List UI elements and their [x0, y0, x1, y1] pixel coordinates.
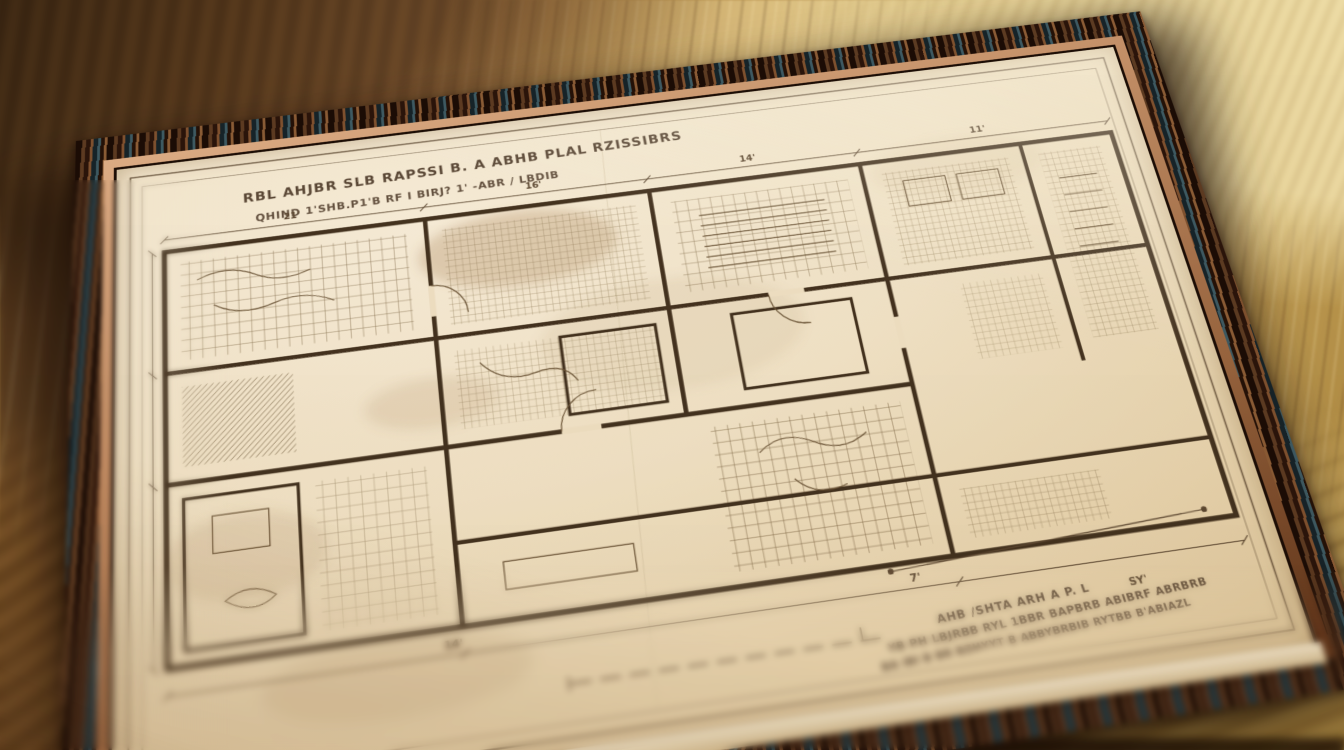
svg-text:21': 21': [283, 211, 300, 223]
svg-text:11': 11': [968, 125, 987, 136]
photo-scene: RBL AHJBR SLB RAPSSI B. A ABHB PLAL RZIS…: [0, 0, 1344, 750]
svg-text:14': 14': [739, 153, 757, 165]
blur-left-edge: [0, 180, 230, 750]
svg-text:16': 16': [525, 180, 543, 192]
